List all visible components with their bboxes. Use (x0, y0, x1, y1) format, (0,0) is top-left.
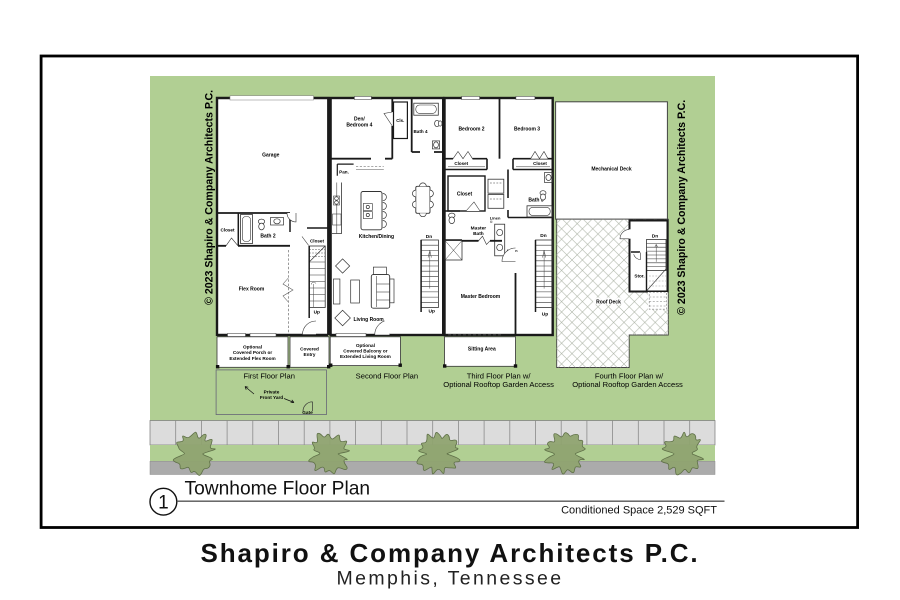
svg-text:Garage: Garage (262, 153, 279, 159)
svg-text:Up: Up (542, 312, 548, 318)
svg-text:Bedroom 2: Bedroom 2 (458, 127, 484, 133)
svg-text:Second Floor Plan: Second Floor Plan (356, 372, 418, 381)
svg-text:Closet: Closet (533, 161, 547, 166)
svg-text:Bath 4: Bath 4 (413, 129, 427, 134)
svg-text:Closet: Closet (310, 239, 325, 244)
svg-text:Townhome Floor Plan: Townhome Floor Plan (185, 478, 371, 499)
svg-text:Kitchen/Dining: Kitchen/Dining (359, 234, 394, 240)
svg-text:Gate: Gate (302, 410, 313, 415)
svg-text:Bedroom 4: Bedroom 4 (346, 123, 372, 129)
svg-text:Bath 2: Bath 2 (260, 234, 276, 240)
svg-text:First Floor Plan: First Floor Plan (243, 372, 294, 381)
svg-text:1: 1 (158, 493, 169, 514)
svg-text:Entry: Entry (304, 352, 316, 357)
svg-text:Pan.: Pan. (339, 170, 349, 175)
svg-text:Mechanical Deck: Mechanical Deck (591, 167, 632, 173)
svg-text:Dn: Dn (540, 233, 546, 239)
svg-text:Stor.: Stor. (634, 274, 644, 279)
svg-text:Extended Living Room: Extended Living Room (340, 354, 391, 359)
svg-text:Sitting Area: Sitting Area (468, 347, 496, 353)
svg-text:Dn: Dn (426, 234, 432, 240)
svg-text:Flex Room: Flex Room (239, 287, 265, 293)
svg-text:© 2023 Shapiro & Company Archi: © 2023 Shapiro & Company Architects P.C. (676, 100, 688, 315)
svg-text:Closet: Closet (454, 161, 468, 166)
svg-text:Optional: Optional (243, 345, 262, 350)
svg-text:Roof Deck: Roof Deck (596, 300, 621, 306)
svg-text:Shapiro & Company Architects P: Shapiro & Company Architects P.C. (200, 538, 699, 568)
svg-text:Closet: Closet (457, 192, 473, 198)
svg-text:Front Yard: Front Yard (260, 395, 283, 400)
svg-text:© 2023 Shapiro & Company Archi: © 2023 Shapiro & Company Architects P.C. (204, 90, 216, 305)
svg-text:Covered: Covered (300, 347, 319, 352)
svg-text:Cls.: Cls. (396, 118, 404, 123)
svg-text:Covered Balcony or: Covered Balcony or (343, 349, 387, 354)
svg-text:Dn: Dn (652, 234, 658, 240)
svg-text:Extended Flex Room: Extended Flex Room (229, 356, 275, 361)
svg-text:Optional: Optional (356, 343, 375, 348)
svg-text:Optional Rooftop Garden Access: Optional Rooftop Garden Access (572, 380, 683, 389)
svg-text:Conditioned Space 2,529 SQFT: Conditioned Space 2,529 SQFT (561, 505, 717, 517)
svg-text:Bedroom 3: Bedroom 3 (514, 127, 540, 133)
svg-text:Memphis, Tennessee: Memphis, Tennessee (336, 568, 563, 590)
svg-text:Master: Master (471, 226, 487, 232)
svg-text:Linen: Linen (490, 216, 501, 221)
svg-text:Master Bedroom: Master Bedroom (461, 294, 501, 300)
svg-text:Living Room: Living Room (353, 317, 384, 323)
svg-text:Up: Up (428, 309, 434, 315)
svg-text:Optional Rooftop Garden Access: Optional Rooftop Garden Access (443, 380, 554, 389)
svg-text:Up: Up (314, 310, 320, 316)
svg-text:Covered Porch or: Covered Porch or (233, 350, 273, 355)
svg-text:Private: Private (264, 389, 280, 394)
svg-text:Closet: Closet (220, 228, 235, 233)
